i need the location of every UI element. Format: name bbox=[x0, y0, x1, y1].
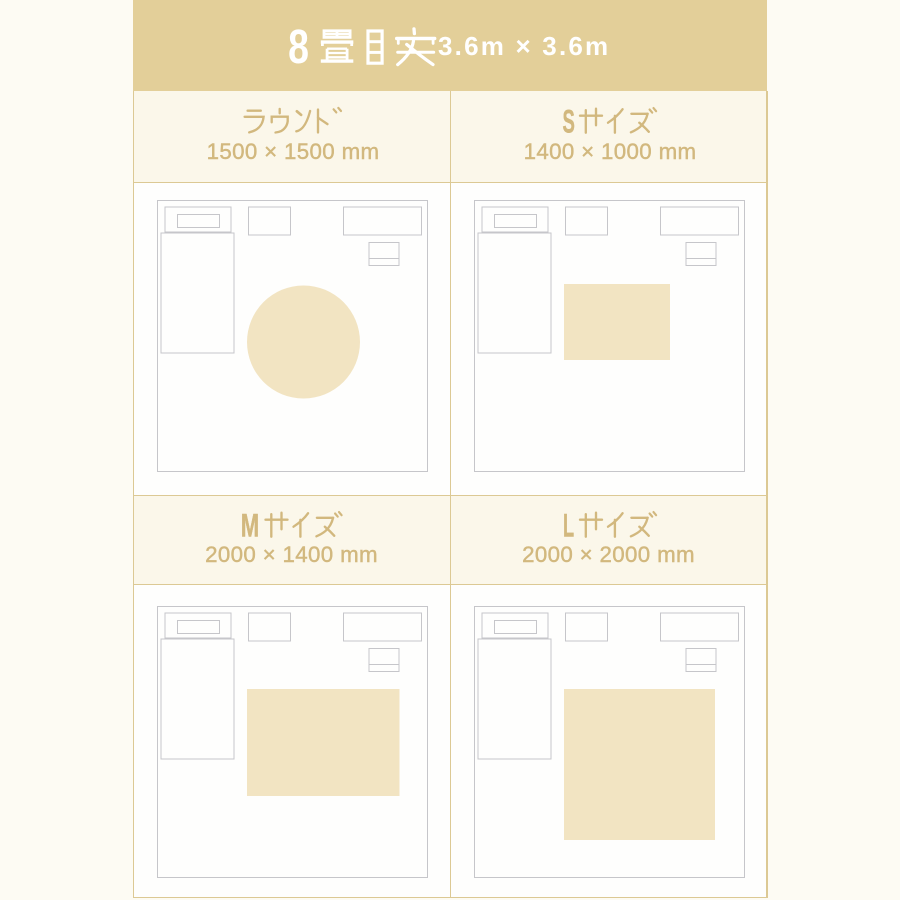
svg-text:S: S bbox=[563, 103, 575, 140]
svg-text:L: L bbox=[563, 507, 574, 544]
svg-text:3.6m × 3.6m: 3.6m × 3.6m bbox=[438, 31, 610, 61]
svg-text:M: M bbox=[241, 507, 259, 543]
svg-text:8: 8 bbox=[288, 21, 309, 75]
